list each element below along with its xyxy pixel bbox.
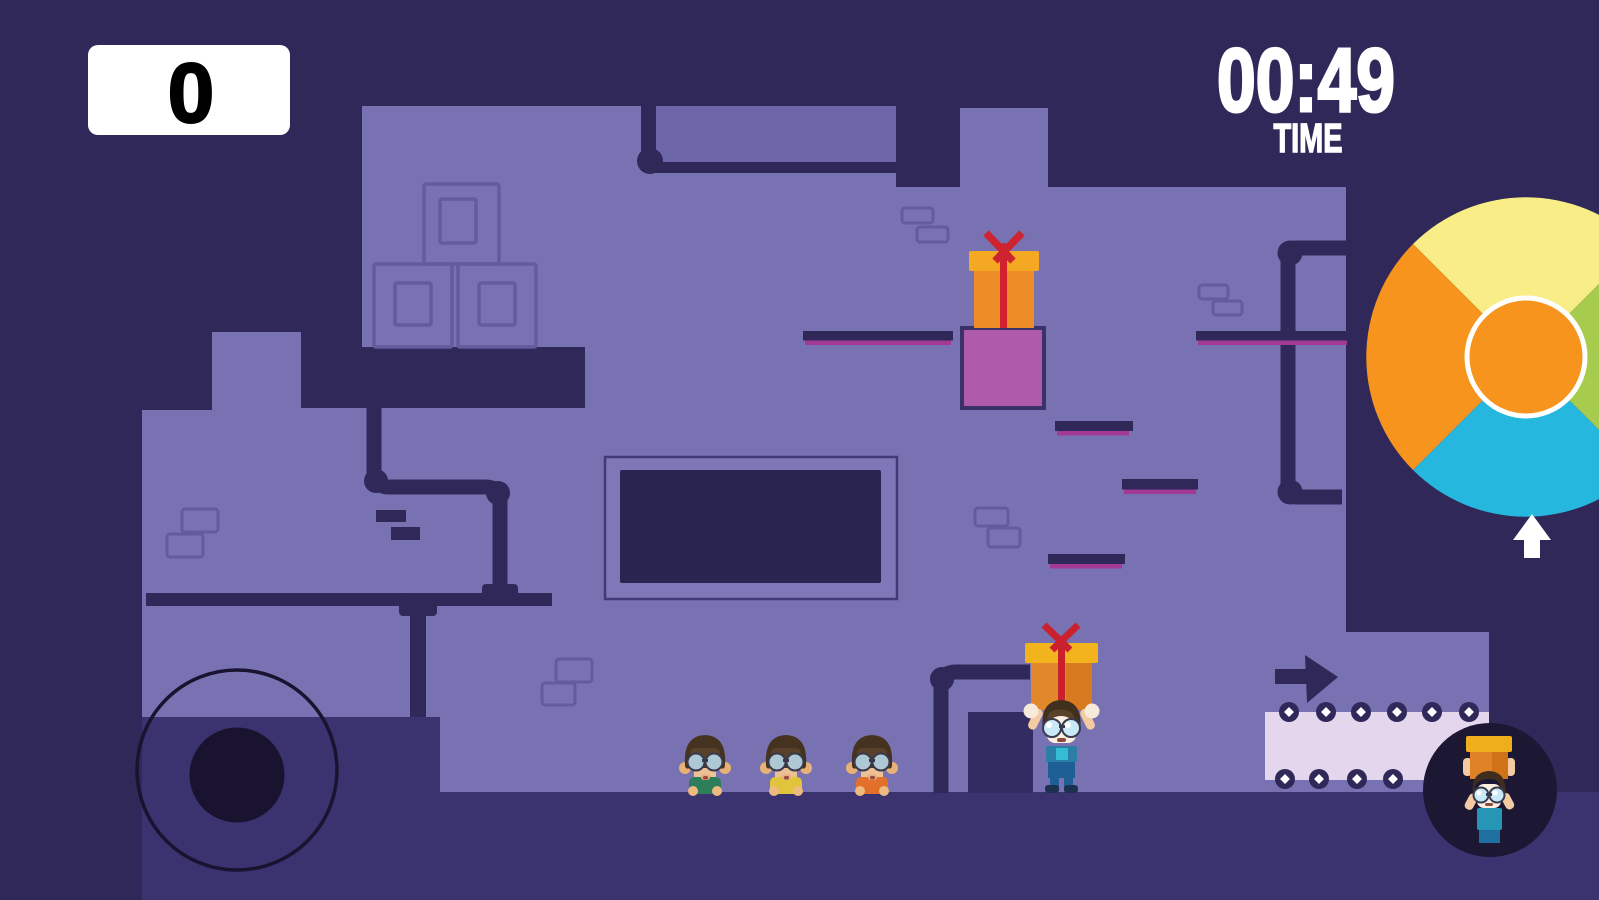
svg-text:TIME: TIME [1274,115,1343,161]
svg-text:0: 0 [168,46,215,140]
